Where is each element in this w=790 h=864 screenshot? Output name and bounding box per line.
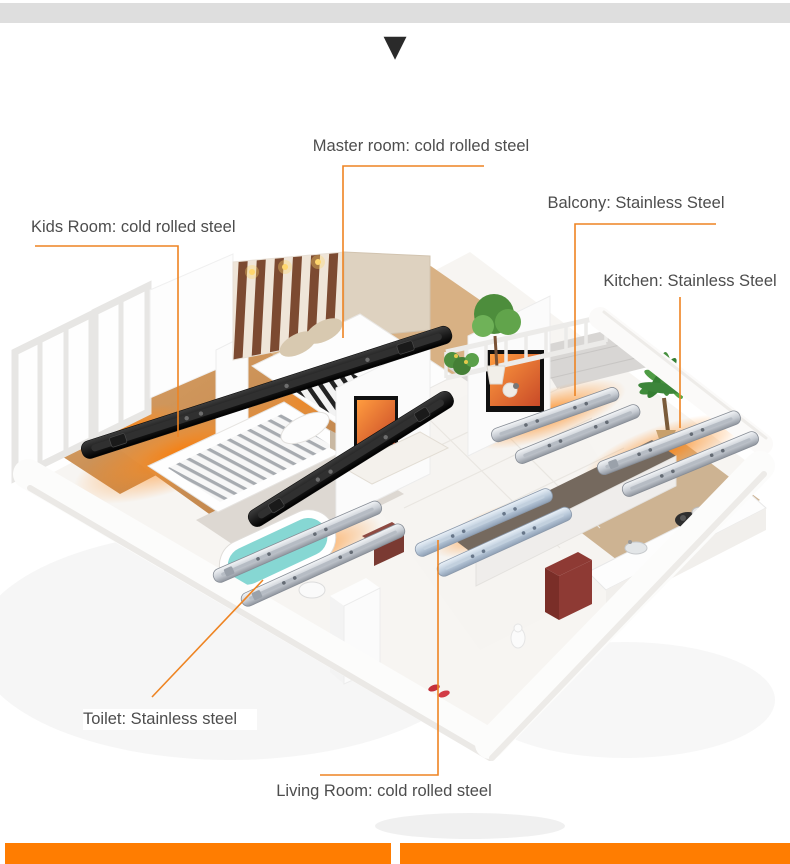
label-living-room: Living Room: cold rolled steel: [276, 781, 492, 802]
floorplan-illustration: [0, 0, 790, 864]
footer-accent-bar-left: [5, 843, 391, 864]
bathroom-sink: [299, 582, 325, 598]
label-balcony: Balcony: Stainless Steel: [547, 193, 724, 214]
label-kitchen: Kitchen: Stainless Steel: [603, 271, 776, 292]
kitchen-sink: [625, 542, 647, 554]
footer-accent-bar-right: [400, 843, 790, 864]
label-toilet: Toilet: Stainless steel: [83, 709, 257, 730]
label-kids-room: Kids Room: cold rolled steel: [31, 217, 236, 238]
label-master-room: Master room: cold rolled steel: [313, 136, 529, 157]
product-infographic-page: ▼: [0, 0, 790, 864]
